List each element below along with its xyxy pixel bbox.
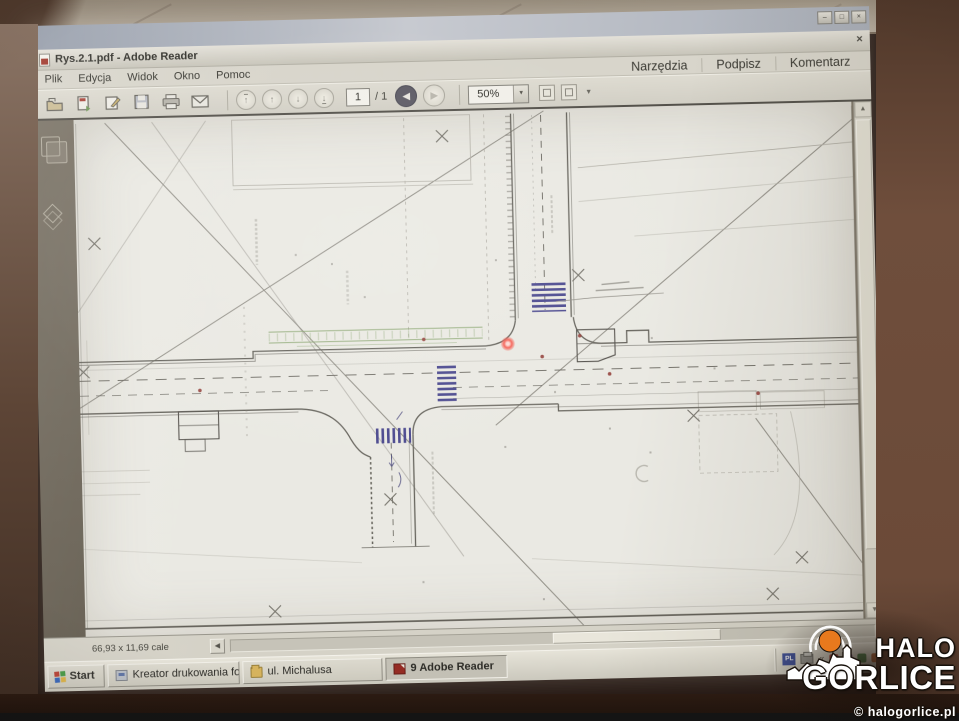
restore-button[interactable]: □ [834, 11, 849, 24]
windows-logo-icon [54, 670, 66, 682]
start-label: Start [69, 670, 94, 683]
taskbar-item-kreator[interactable]: Kreator drukowania foto... [107, 661, 240, 687]
taskbar-item-adobe-reader[interactable]: 9 Adobe Reader ▼ [385, 654, 508, 680]
site-plan-drawing [73, 102, 863, 637]
zoom-value: 50% [469, 88, 513, 101]
menu-okno[interactable]: Okno [166, 70, 209, 83]
zoom-level-select[interactable]: 50% ▼ [468, 84, 529, 104]
pdf-file-icon [39, 53, 50, 66]
print-icon[interactable] [161, 92, 181, 110]
convert-pdf-icon[interactable] [74, 94, 94, 112]
fit-width-icon[interactable] [539, 85, 555, 101]
close-button[interactable]: × [851, 10, 866, 23]
page-total-label: / 1 [375, 91, 388, 103]
sign-pen-icon[interactable] [103, 94, 123, 112]
taskbar-item-label: 9 Adobe Reader [410, 660, 494, 674]
adobe-reader-icon [393, 663, 405, 674]
taskbar-item-label: Kreator drukowania foto... [133, 666, 240, 681]
next-page-button[interactable]: ↓ [288, 88, 308, 108]
reader-close-icon[interactable]: × [856, 33, 863, 45]
window-controls: – □ × [817, 10, 866, 24]
horizontal-scroll-thumb[interactable] [553, 629, 721, 644]
email-icon[interactable] [190, 92, 210, 110]
more-tools-icon[interactable]: ▼ [585, 88, 592, 95]
fit-page-icon[interactable] [561, 84, 577, 100]
page-size-label: 66,93 x 11,69 cale [92, 642, 169, 655]
previous-page-button[interactable]: ↑ [262, 89, 282, 109]
folder-icon [250, 666, 262, 677]
watermark-credit: © halogorlice.pl [854, 706, 956, 719]
window-title: Rys.2.1.pdf - Adobe Reader [55, 50, 198, 65]
tab-podpisz[interactable]: Podpisz [701, 56, 775, 72]
adobe-reader-window: Rys.2.1.pdf - Adobe Reader × Plik Edycja… [30, 30, 884, 662]
document-area: ▲ ▼ [32, 101, 884, 638]
last-page-button[interactable]: ↓ [314, 88, 334, 108]
toolbar-separator [459, 85, 460, 105]
toolbar-separator [227, 90, 228, 110]
page-number-input[interactable]: 1 [346, 88, 370, 107]
projection-photo: – □ × Rys.2.1.pdf - Adobe Reader × Plik … [0, 0, 959, 721]
tab-narzedzia[interactable]: Narzędzia [617, 58, 702, 74]
page-thumbnails-icon[interactable] [41, 136, 60, 156]
menu-pomoc[interactable]: Pomoc [208, 69, 259, 82]
halogorlice-watermark: HALO GORLICE © halogorlice.pl [785, 622, 959, 719]
previous-view-button[interactable]: ◀ [395, 85, 418, 108]
tab-komentarz[interactable]: Komentarz [775, 54, 865, 70]
watermark-line1: HALO [876, 635, 957, 662]
open-file-icon[interactable] [45, 95, 65, 113]
save-icon[interactable] [132, 93, 152, 111]
scroll-up-icon[interactable]: ▲ [854, 101, 871, 117]
menu-plik[interactable]: Plik [36, 73, 70, 86]
minimize-button[interactable]: – [817, 11, 832, 24]
projected-screen: – □ × Rys.2.1.pdf - Adobe Reader × Plik … [29, 6, 884, 692]
taskbar-item-label: ul. Michalusa [267, 664, 331, 678]
menu-edycja[interactable]: Edycja [70, 72, 119, 85]
menu-widok[interactable]: Widok [119, 71, 166, 84]
taskbar-item-folder[interactable]: ul. Michalusa [242, 657, 383, 683]
layers-panel-icon[interactable] [43, 206, 62, 226]
next-view-button[interactable]: ▶ [423, 84, 446, 107]
print-wizard-icon [116, 669, 128, 680]
start-button[interactable]: Start [47, 664, 105, 688]
first-page-button[interactable]: ↑ [236, 90, 256, 110]
zoom-dropdown-icon[interactable]: ▼ [513, 85, 528, 102]
watermark-line2: GORLICE [802, 661, 956, 694]
pdf-page[interactable] [73, 102, 863, 637]
wall-left [0, 24, 38, 721]
scroll-left-icon[interactable]: ◀ [210, 639, 225, 654]
